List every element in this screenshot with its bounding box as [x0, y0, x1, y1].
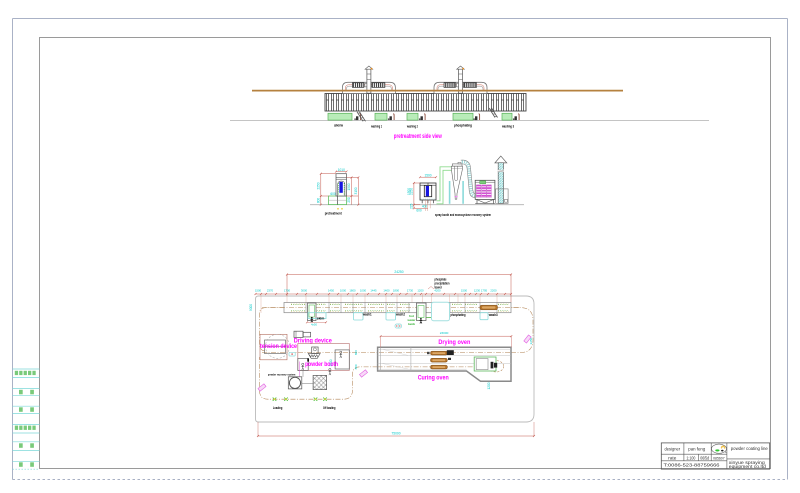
svg-text:2250: 2250: [316, 182, 320, 189]
svg-text:600: 600: [416, 208, 422, 212]
svg-text:250: 250: [347, 197, 351, 203]
svg-text:1400: 1400: [383, 288, 390, 292]
svg-text:1795: 1795: [481, 288, 488, 292]
svg-text:75000: 75000: [391, 431, 400, 435]
svg-text:1:100: 1:100: [686, 455, 696, 460]
svg-text:1000: 1000: [360, 288, 367, 292]
svg-text:wash1: wash1: [362, 312, 372, 316]
svg-text:2250: 2250: [529, 337, 533, 344]
svg-text:1500: 1500: [347, 183, 351, 190]
svg-text:1800: 1800: [349, 288, 356, 292]
svg-text:Drying oven: Drying oven: [438, 339, 470, 346]
svg-text:1500: 1500: [255, 288, 262, 292]
svg-text:pretreatment side view: pretreatment side view: [394, 133, 443, 140]
svg-text:wash3: wash3: [488, 313, 498, 317]
svg-text:1000: 1000: [340, 288, 347, 292]
svg-text:1730: 1730: [407, 288, 414, 292]
svg-text:washing 2: washing 2: [406, 124, 418, 128]
svg-text:600: 600: [330, 192, 336, 196]
svg-text:1500: 1500: [461, 288, 468, 292]
svg-text:23000: 23000: [440, 331, 449, 335]
svg-text:2370: 2370: [267, 288, 274, 292]
svg-text:rate: rate: [668, 455, 677, 460]
svg-text:1500: 1500: [424, 173, 431, 177]
svg-text:Loading: Loading: [273, 406, 283, 410]
svg-text:skim: skim: [317, 317, 325, 321]
svg-text:washing 1: washing 1: [370, 124, 382, 128]
svg-text:skim: skim: [334, 124, 344, 128]
svg-text:24250: 24250: [394, 270, 403, 274]
svg-text:equipment co.ltd: equipment co.ltd: [729, 464, 767, 469]
svg-text:T:0086-523-88759666: T:0086-523-88759666: [664, 463, 721, 468]
svg-text:1230: 1230: [474, 288, 481, 292]
svg-text:1700: 1700: [284, 288, 291, 292]
svg-text:400: 400: [422, 205, 428, 209]
svg-text:9000: 9000: [249, 304, 253, 311]
svg-text:085607: 085607: [713, 455, 725, 460]
svg-text:3150: 3150: [354, 187, 358, 194]
svg-text:800: 800: [316, 198, 320, 204]
svg-text:washing 3: washing 3: [501, 124, 514, 128]
svg-text:1445: 1445: [370, 288, 377, 292]
svg-text:3000: 3000: [301, 288, 308, 292]
svg-text:phosphating: phosphating: [451, 313, 466, 317]
svg-text:225: 225: [410, 203, 414, 209]
svg-text:1800: 1800: [393, 288, 400, 292]
svg-text:1200: 1200: [417, 288, 424, 292]
svg-text:phosphating: phosphating: [454, 124, 472, 128]
svg-text:designer: designer: [665, 446, 681, 451]
svg-text:06/5d: 06/5d: [700, 455, 710, 460]
svg-text:1450: 1450: [328, 288, 335, 292]
svg-text:pretreatment: pretreatment: [325, 212, 343, 216]
svg-text:spray booth and monocyclone re: spray booth and monocyclone recovery sys…: [435, 213, 491, 217]
svg-text:Curing oven: Curing oven: [418, 374, 449, 381]
svg-text:Off loading: Off loading: [323, 406, 336, 410]
svg-text:powder booth: powder booth: [305, 361, 338, 368]
svg-text:2200: 2200: [490, 288, 497, 292]
svg-text:powder coating line: powder coating line: [731, 446, 769, 451]
svg-text:powder recovery system: powder recovery system: [268, 372, 296, 376]
svg-text:1010: 1010: [338, 168, 345, 172]
svg-text:tower: tower: [435, 285, 443, 289]
svg-text:1200: 1200: [487, 382, 491, 389]
svg-text:4x50: 4x50: [311, 322, 318, 326]
svg-text:tank: tank: [408, 322, 415, 326]
svg-text:800: 800: [354, 364, 358, 369]
svg-text:1500: 1500: [407, 188, 411, 195]
svg-text:wash2: wash2: [395, 312, 405, 316]
svg-text:pan feng: pan feng: [688, 446, 706, 451]
svg-text:tension device: tension device: [260, 343, 297, 350]
svg-text:800: 800: [354, 350, 358, 355]
